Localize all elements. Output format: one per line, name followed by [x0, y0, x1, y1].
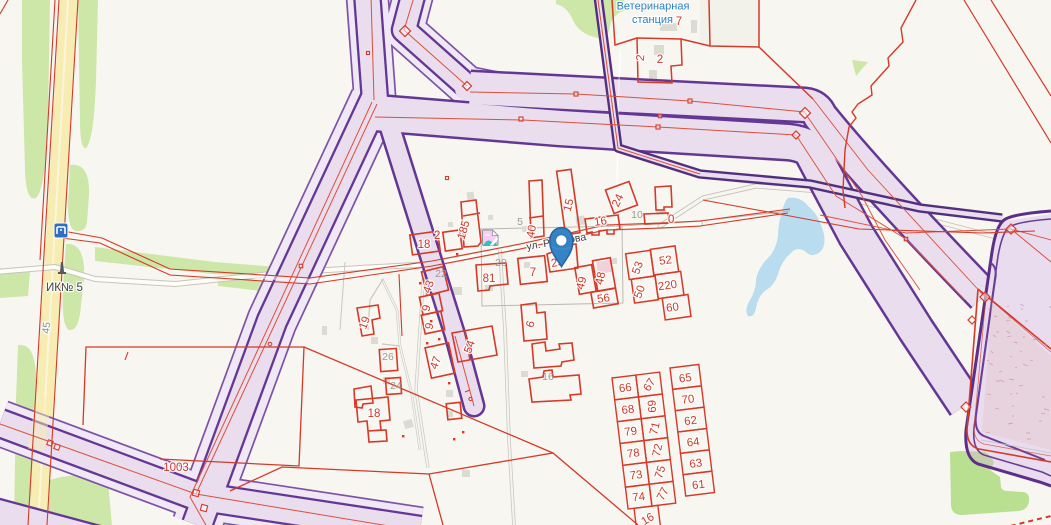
svg-text:20: 20	[495, 257, 507, 269]
svg-text:66: 66	[618, 382, 632, 395]
svg-text:63: 63	[689, 457, 703, 470]
svg-text:18: 18	[418, 239, 431, 251]
svg-text:16: 16	[542, 371, 554, 383]
svg-text:2: 2	[635, 54, 648, 61]
svg-text:40: 40	[525, 224, 539, 239]
svg-text:78: 78	[626, 447, 640, 460]
svg-text:16: 16	[593, 215, 607, 229]
svg-text:79: 79	[624, 425, 638, 438]
svg-text:56: 56	[596, 292, 610, 306]
svg-text:Ветеринарная: Ветеринарная	[617, 1, 690, 13]
svg-text:24: 24	[390, 380, 402, 392]
svg-text:69: 69	[647, 400, 659, 413]
svg-text:60: 60	[665, 301, 679, 315]
svg-text:74: 74	[632, 491, 647, 505]
svg-text:2: 2	[434, 230, 440, 242]
svg-text:70: 70	[681, 393, 695, 406]
svg-text:73: 73	[629, 469, 643, 482]
svg-text:18: 18	[368, 408, 381, 420]
svg-text:7: 7	[676, 16, 682, 28]
svg-text:52: 52	[658, 254, 672, 268]
svg-text:10: 10	[631, 209, 643, 221]
svg-text:62: 62	[684, 415, 698, 428]
svg-text:7: 7	[530, 267, 536, 279]
svg-text:1003: 1003	[163, 462, 189, 474]
svg-text:станция: станция	[632, 14, 673, 26]
svg-text:22: 22	[435, 268, 447, 280]
svg-text:2: 2	[657, 54, 663, 66]
svg-text:61: 61	[691, 479, 705, 492]
svg-text:81: 81	[483, 273, 496, 285]
svg-text:26: 26	[382, 351, 394, 363]
svg-text:68: 68	[621, 404, 635, 417]
svg-text:ИК№ 5: ИК№ 5	[46, 282, 83, 294]
svg-text:5: 5	[517, 216, 523, 228]
svg-text:65: 65	[678, 372, 692, 385]
svg-text:45: 45	[40, 321, 53, 334]
svg-text:0: 0	[668, 214, 674, 226]
svg-text:64: 64	[686, 436, 701, 450]
